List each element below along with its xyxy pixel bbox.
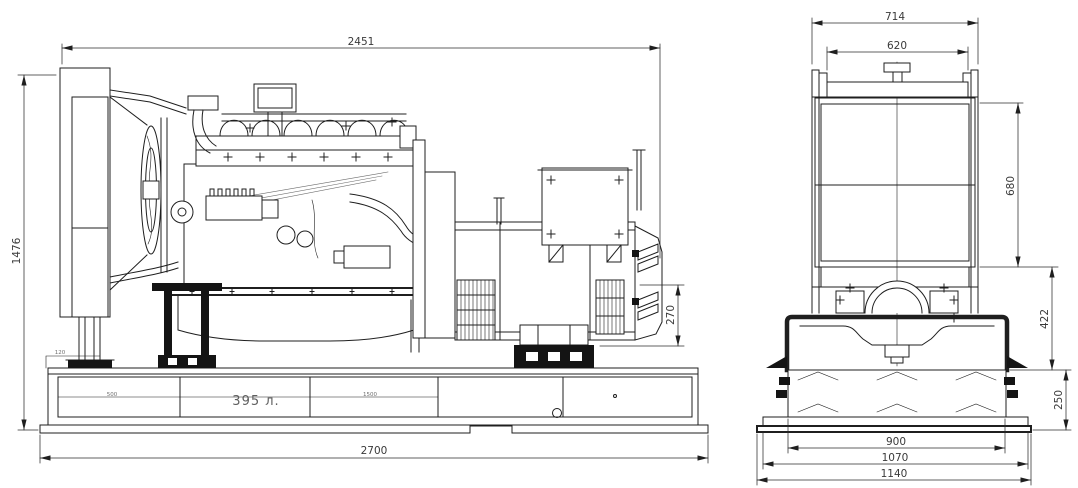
dim-radiator-core-height-label: 680 [1005, 176, 1017, 196]
dim-overall-height-label: 1476 [11, 237, 23, 264]
radiator-cap [884, 63, 910, 72]
engine-side [170, 84, 450, 352]
dim-shelf-width-label: 1070 [882, 452, 909, 464]
base-tank-front [757, 370, 1031, 432]
dim-tank-section-mid-label: 1500 [363, 392, 377, 398]
generator-vent-front [457, 280, 495, 340]
dim-generator-mount-height-label: 270 [665, 305, 677, 325]
generator-vent-rear [596, 280, 624, 334]
radiator-foot-pad [68, 360, 112, 368]
dim-tank-section-left-label: 500 [107, 392, 118, 398]
side-view: 2451 1476 270 2700 120 500 1500 395 л. [11, 36, 708, 463]
front-view: 714 620 680 422 250 900 1070 1140 [757, 11, 1071, 485]
dim-overall-base-width-label: 1140 [881, 468, 908, 480]
tank-capacity-label: 395 л. [232, 394, 279, 409]
dim-top-bar-width-label: 620 [887, 40, 907, 52]
dim-base-length-label: 2700 [361, 445, 388, 457]
dim-overall-length-label: 2451 [348, 36, 375, 48]
fan-side [141, 118, 167, 272]
drawing-sheet: 2451 1476 270 2700 120 500 1500 395 л. [0, 0, 1078, 488]
dim-frame-width-label: 714 [885, 11, 905, 23]
dim-base-tank-height-label: 250 [1053, 390, 1065, 410]
skid-clamp-left [766, 356, 787, 368]
bell-housing [413, 140, 455, 338]
dim-tank-width-label: 900 [886, 436, 906, 448]
technical-drawing: 2451 1476 270 2700 120 500 1500 395 л. [0, 0, 1078, 488]
skid-clamp-right [1007, 356, 1028, 368]
dim-base-step-label: 120 [55, 350, 66, 356]
radiator-front [812, 63, 978, 313]
dim-engine-mount-height-label: 422 [1039, 309, 1051, 329]
